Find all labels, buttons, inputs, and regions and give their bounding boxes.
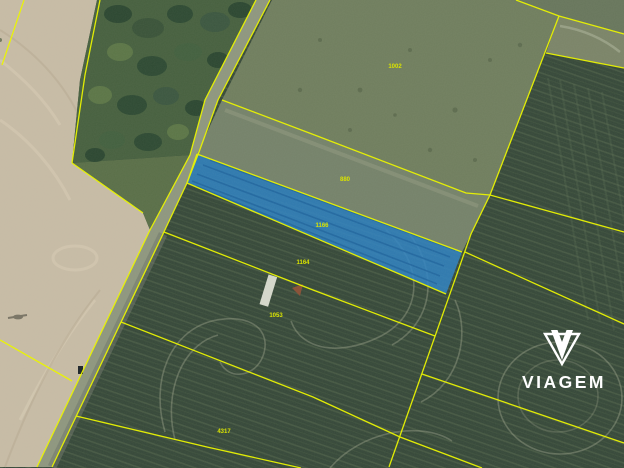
parcel-label: 1002 [388, 64, 402, 70]
parcel-label: 1053 [269, 313, 283, 319]
parcel-label-highlighted: 1166 [315, 223, 329, 229]
cadastral-map-image: 1002 880 1166 1164 1053 4317 VIAGEM [0, 0, 624, 468]
viagem-brand-text: VIAGEM [522, 372, 606, 392]
aerial-map-canvas: 1002 880 1166 1164 1053 4317 VIAGEM [0, 0, 624, 468]
parcel-label: 880 [340, 177, 351, 183]
parcel-label: 1164 [296, 260, 310, 266]
parcel-label: 4317 [217, 429, 231, 435]
photo-grain [0, 0, 624, 468]
